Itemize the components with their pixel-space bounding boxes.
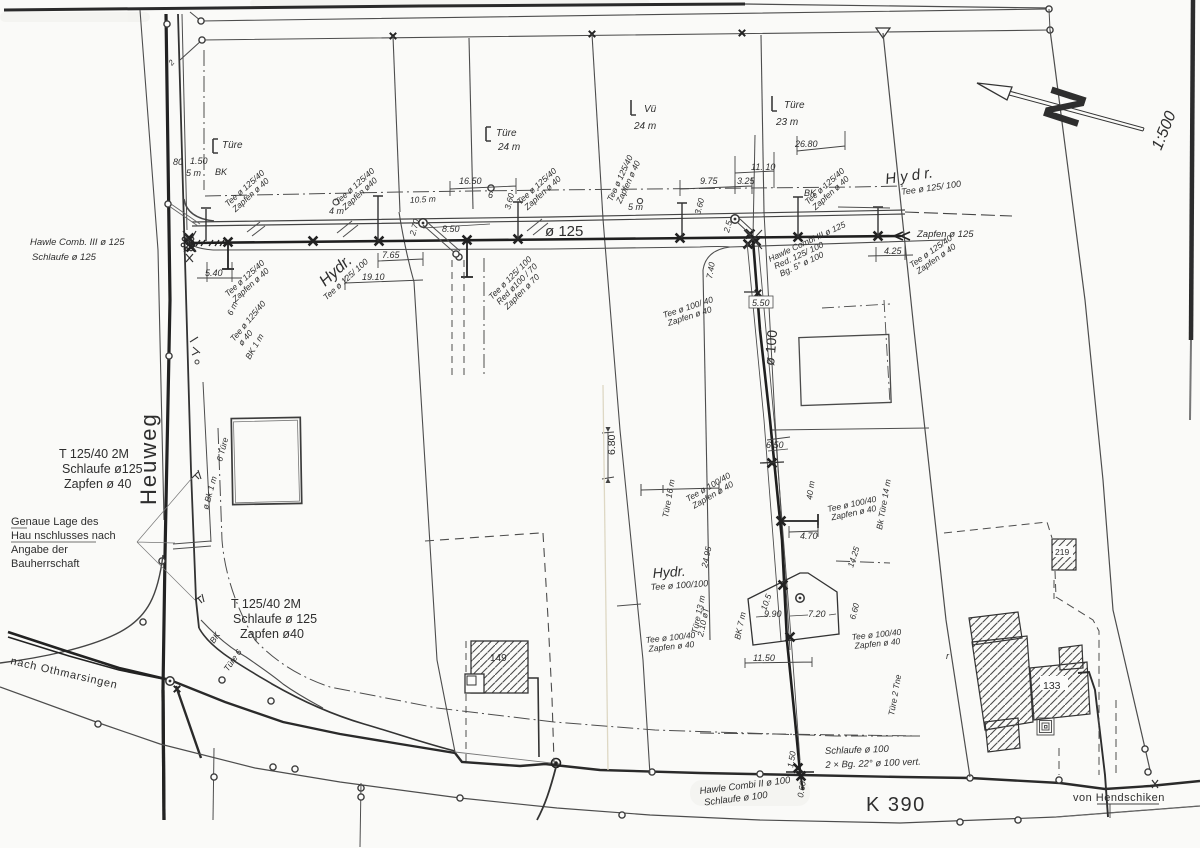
svg-text:10.5 m: 10.5 m xyxy=(410,194,436,205)
svg-text:7.20: 7.20 xyxy=(808,609,826,619)
svg-text:3.25: 3.25 xyxy=(737,176,756,186)
svg-text:Türe: Türe xyxy=(496,128,517,139)
svg-text:26.80: 26.80 xyxy=(794,139,818,149)
svg-text:K 390: K 390 xyxy=(866,794,926,816)
svg-text:7.65: 7.65 xyxy=(382,250,401,260)
svg-text:1.50: 1.50 xyxy=(190,156,208,166)
svg-text:24 m: 24 m xyxy=(633,121,656,132)
svg-text:Bauherrschaft: Bauherrschaft xyxy=(11,558,79,570)
svg-text:Schlaufe ø 125: Schlaufe ø 125 xyxy=(32,252,97,263)
svg-text:219: 219 xyxy=(1055,547,1069,557)
svg-text:11. 10: 11. 10 xyxy=(751,162,775,172)
svg-text:9.75: 9.75 xyxy=(700,176,719,186)
svg-text:4.70: 4.70 xyxy=(800,531,818,541)
svg-text:BK: BK xyxy=(804,188,817,198)
svg-text:Heuweg: Heuweg xyxy=(136,412,161,505)
svg-text:5.50: 5.50 xyxy=(752,298,770,308)
svg-text:80: 80 xyxy=(173,157,183,167)
svg-text:8.50: 8.50 xyxy=(442,224,460,234)
svg-text:23 m: 23 m xyxy=(775,117,798,128)
svg-text:11.50: 11.50 xyxy=(753,653,775,663)
svg-text:Hydr.: Hydr. xyxy=(652,563,686,581)
svg-text:133: 133 xyxy=(1043,680,1061,692)
svg-text:von Hendschiken: von Hendschiken xyxy=(1073,792,1165,804)
svg-text:6: 6 xyxy=(488,190,493,200)
svg-text:6.50: 6.50 xyxy=(766,440,784,450)
svg-text:Hau nschlusses nach: Hau nschlusses nach xyxy=(11,530,116,542)
svg-text:ø 125: ø 125 xyxy=(545,223,583,240)
svg-text:T 125/40 2M: T 125/40 2M xyxy=(231,597,301,611)
svg-text:Türe: Türe xyxy=(222,140,243,151)
svg-text:24 m: 24 m xyxy=(497,142,520,153)
svg-text:ø 100: ø 100 xyxy=(761,329,780,366)
svg-text:5.40: 5.40 xyxy=(205,268,223,278)
svg-text:5 m: 5 m xyxy=(186,168,202,178)
svg-text:Schlaufe ø 125: Schlaufe ø 125 xyxy=(233,612,317,626)
svg-text:Schlaufe ø125: Schlaufe ø125 xyxy=(62,462,143,476)
svg-text:4.25: 4.25 xyxy=(884,246,903,256)
svg-text:BK: BK xyxy=(215,167,228,177)
svg-text:Zapfen ø40: Zapfen ø40 xyxy=(240,627,304,641)
svg-text:Angabe der: Angabe der xyxy=(11,544,68,556)
svg-text:6.80: 6.80 xyxy=(606,434,618,455)
svg-text:Genaue Lage des: Genaue Lage des xyxy=(11,516,99,528)
svg-text:5 m: 5 m xyxy=(628,202,644,212)
svg-text:T 125/40 2M: T 125/40 2M xyxy=(59,447,129,461)
svg-text:16.50: 16.50 xyxy=(459,176,482,186)
svg-text:Schlaufe ø 100: Schlaufe ø 100 xyxy=(825,744,890,757)
svg-text:4 m: 4 m xyxy=(329,206,345,216)
svg-text:149: 149 xyxy=(490,653,507,664)
svg-text:Zapfen ø 40: Zapfen ø 40 xyxy=(64,477,131,491)
svg-text:Vü: Vü xyxy=(644,104,657,115)
svg-text:19.10: 19.10 xyxy=(362,272,385,282)
svg-text:Türe: Türe xyxy=(784,100,805,111)
svg-text:Hawle Comb. III ø 125: Hawle Comb. III ø 125 xyxy=(30,237,125,248)
